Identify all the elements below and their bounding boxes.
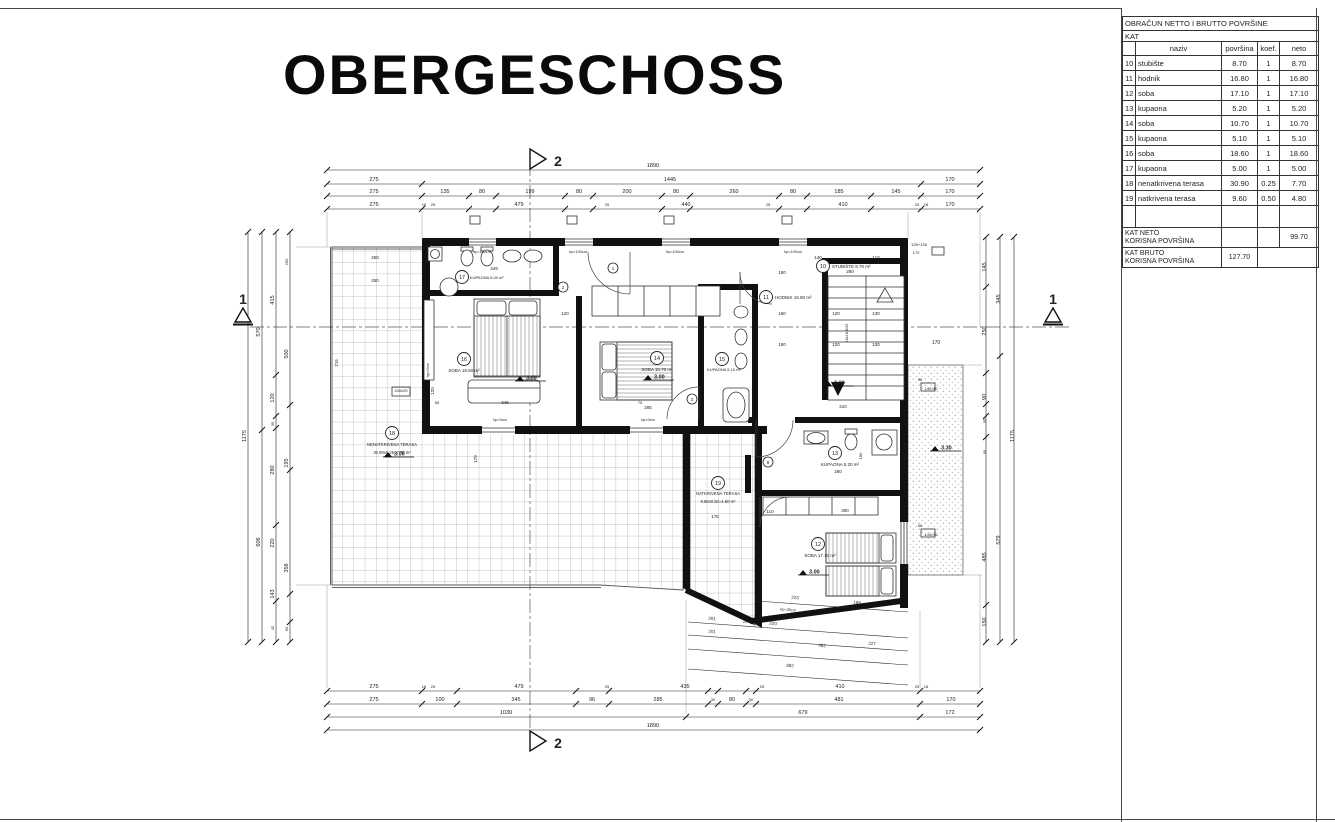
dim-label: 60 (284, 626, 289, 631)
dim-label: 180 (858, 452, 863, 459)
dim-label: 250 (371, 278, 379, 283)
section-marker-2-top (530, 149, 546, 169)
dim-label: 35 (982, 418, 987, 423)
dim-label: 280 (846, 269, 854, 274)
dim-label: 100 (435, 697, 444, 703)
dim-label: 1039 (500, 710, 512, 716)
dim-label: 130 (872, 342, 880, 347)
dim-label: 135 (440, 189, 449, 195)
dim-label: hp=0cm (493, 418, 507, 422)
room-number: 17 (459, 275, 465, 281)
sink-icon (734, 306, 748, 318)
elevation-value: 3.00 (654, 375, 665, 381)
dim-label: 25 (605, 202, 610, 207)
floor-plan-svg: 1890275144517027513580199802008026080185… (0, 0, 1335, 822)
dim-label: 285 (644, 405, 652, 410)
room-number: 19 (715, 481, 721, 487)
dim-label: 250 (371, 255, 379, 260)
dim-label: 80 (729, 697, 735, 703)
dim-label: 185 (834, 189, 843, 195)
sink-icon (503, 250, 521, 262)
dim-label: 280 (834, 469, 842, 474)
dim-label: 679 (798, 710, 807, 716)
room-name: KUPAONA 5.10 m² (707, 367, 741, 372)
room-name: STUBIŠTE 8.70 m² (832, 263, 871, 269)
dim-label: 345 (501, 400, 509, 405)
dim-label: 120 (430, 387, 435, 395)
dim-label: 189 (853, 600, 861, 606)
dim-label: 179 (473, 455, 478, 463)
dim-label: 150 (982, 617, 988, 626)
room-number: 11 (763, 295, 769, 301)
dim-label: 25 (605, 684, 610, 689)
elevation-value: 3.00 (809, 570, 820, 576)
room-name: KUPAONA 5.00 m² (470, 275, 504, 280)
dim-label: 300 (841, 508, 849, 513)
elevation-value: 3.00 (526, 376, 537, 382)
dim-label: 25 (760, 684, 765, 689)
dim-label: 570 (256, 327, 262, 336)
dim-label: 227 (868, 641, 876, 647)
room-name: SOBA 10.70 m² (641, 367, 673, 372)
bathtub-icon (723, 388, 749, 422)
dim-label: 275 (369, 202, 378, 208)
dim-label: hp=100cm (666, 250, 684, 254)
dim-label: 160 (778, 342, 786, 347)
dim-label: 500 (284, 349, 290, 358)
section-marker-1-left (233, 308, 253, 325)
sink-icon (524, 250, 542, 262)
dim-label: 358 (284, 563, 290, 572)
dim-label: 25 (915, 202, 920, 207)
dim-label: hp=100cm (903, 443, 907, 461)
dim-label: 410 (835, 684, 844, 690)
dim-label: 35 (270, 421, 275, 426)
dim-label: 170 (932, 340, 941, 346)
dim-label: 199 (525, 189, 534, 195)
dim-label: 30 (711, 697, 716, 702)
room-name: NENATKRIVENA TERASA (367, 442, 417, 447)
sink-icon (804, 431, 828, 444)
dim-label: 120 (270, 393, 276, 402)
shower-icon (440, 278, 458, 296)
dim-label: 479 (514, 202, 523, 208)
room-area: 30.90x0.25=7.70 m² (373, 450, 411, 455)
dim-label: 170 (945, 202, 954, 208)
dim-label: 201 (708, 616, 716, 622)
window-right (900, 522, 909, 564)
dim-label: 80 (790, 189, 796, 195)
dim-label: 2 (554, 153, 562, 169)
dim-label: 485 (982, 552, 988, 561)
wardrobe-room12 (763, 497, 878, 515)
room-area: 9.60x0.50=4.80 m² (700, 499, 736, 504)
dim-label: 200 (622, 189, 631, 195)
dim-label: 90 (982, 394, 988, 400)
dim-label: 482 (818, 643, 826, 649)
terrace-stippled (908, 365, 963, 575)
dim-label: 120 (561, 311, 569, 316)
dim-label: 170 (945, 177, 954, 183)
room-name: HODNIK 16.80 m² (775, 295, 812, 300)
elevation-value: 3.00 (394, 452, 405, 458)
dim-label: 135+135 (911, 242, 927, 247)
dim-label: 415 (270, 295, 276, 304)
dim-label: 140 (814, 255, 822, 260)
room-number: 13 (832, 451, 838, 457)
dim-label: 96 (589, 697, 595, 703)
dim-label: 160 (778, 270, 786, 275)
dim-label: 110 (872, 255, 880, 260)
section-marker-1-right (1043, 308, 1063, 325)
dim-label: 435 (680, 684, 689, 690)
dim-label: 275 (369, 177, 378, 183)
dim-label: 440 (681, 202, 690, 208)
dim-label: 1 (1049, 291, 1057, 307)
dim-label: 98 (918, 378, 922, 382)
dim-label: 25 (766, 202, 771, 207)
dim-label: 16x18.8/25 (845, 324, 849, 343)
dim-label: hp=0cm (879, 418, 893, 422)
window-top-3 (662, 238, 690, 247)
dim-label: hp=0cm (641, 418, 655, 422)
dim-label: 260 (729, 189, 738, 195)
dim-label: 175 (711, 514, 719, 519)
bed-room16 (474, 299, 540, 377)
dim-label: 1890 (647, 723, 659, 729)
dim-label: 1175 (242, 430, 248, 442)
dim-label: 42 (270, 625, 275, 630)
dim-label: 143 (270, 589, 276, 598)
dim-label: 349 (490, 266, 498, 271)
room-name: SOBA 18.60 m² (448, 368, 480, 373)
dim-label: 140+20 (925, 533, 938, 537)
dim-label: 201 (708, 629, 716, 635)
dim-label: 481 (834, 697, 843, 703)
dim-label: 410 (838, 202, 847, 208)
dim-label: hp=100cm (473, 250, 491, 254)
dim-label: 220 (769, 621, 777, 627)
dim-label: 172 (945, 710, 954, 716)
toilet-icon (735, 329, 747, 345)
dim-label: 70 (638, 400, 643, 405)
room-number: 16 (461, 357, 467, 363)
dim-label: 1445 (664, 177, 676, 183)
dim-label: 25 (915, 684, 920, 689)
dim-label: 275 (369, 684, 378, 690)
dim-label: 275 (369, 189, 378, 195)
dim-label: 18 (422, 684, 427, 689)
dim-label: 195 (284, 458, 290, 467)
dim-label: 345 (511, 697, 520, 703)
dim-label: hp=100cm (784, 250, 802, 254)
dim-label: 579 (996, 535, 1002, 544)
dim-label: 18 (924, 684, 929, 689)
dim-label: 170 (946, 697, 955, 703)
toilet-icon (845, 429, 857, 450)
dim-label: hp=100cm (569, 250, 587, 254)
dim-label: 310 (839, 404, 847, 409)
toilet-icon (461, 247, 473, 266)
elevation-value: 3.00 (834, 381, 845, 387)
room-name: KUPAONA 5.20 m² (821, 462, 859, 467)
dim-label: 110 (753, 465, 758, 472)
dim-label: hp=30cm (780, 607, 796, 612)
terrace-door-1 (482, 426, 515, 435)
elevation-symbol (799, 570, 807, 575)
terrace-door-2 (630, 426, 663, 435)
dim-label: 145 (891, 189, 900, 195)
dim-label: 68 (918, 524, 922, 528)
dim-label: 479 (514, 684, 523, 690)
room-number: 15 (719, 357, 725, 363)
dim-label: 240x20 (394, 388, 408, 393)
dim-label: 285 (653, 697, 662, 703)
room-name: NATKRIVENA TERASA (696, 491, 740, 496)
dim-label: 18 (924, 202, 929, 207)
dim-label: 2 (554, 735, 562, 751)
elevation-value: 3.30 (941, 446, 952, 452)
dim-label: 1175 (1010, 430, 1016, 442)
dim-label: 882 (786, 663, 794, 669)
room-name: SOBA 17.10 m² (804, 553, 836, 558)
beds-room12 (826, 533, 896, 596)
dim-label: 80 (576, 189, 582, 195)
washer-icon (428, 247, 442, 261)
dim-label: 220 (270, 538, 276, 547)
dim-label: 170 (913, 250, 920, 255)
dim-label: 60 (982, 449, 987, 454)
room-number: 10 (820, 264, 826, 270)
dim-label: 80 (479, 189, 485, 195)
dim-label: 25 (431, 202, 436, 207)
dim-label: 18 (422, 202, 427, 207)
wardrobe-room14 (592, 286, 720, 316)
dim-label: 160 (778, 311, 786, 316)
dim-label: 715 (334, 359, 339, 367)
dim-label: 170 (945, 189, 954, 195)
dim-label: 130 (872, 311, 880, 316)
window-top-2 (565, 238, 593, 247)
window-top-4 (779, 238, 807, 247)
dim-label: 110 (766, 509, 774, 514)
dim-label: 1 (239, 291, 247, 307)
dim-label: 25 (431, 684, 436, 689)
dim-label: 80 (673, 189, 679, 195)
section-marker-2-bottom (530, 731, 546, 751)
shower-icon (872, 430, 897, 455)
dim-label: 1890 (647, 163, 659, 169)
dim-label: 606 (256, 537, 262, 546)
dim-label: 65 (435, 400, 440, 405)
room-number: 14 (654, 356, 660, 362)
dim-label: 30 (749, 697, 754, 702)
dim-label: 140+20 (925, 387, 938, 391)
dim-label: 120 (832, 311, 840, 316)
dim-label: 223 (791, 595, 799, 601)
room-number: 12 (815, 542, 821, 548)
dim-label: 145 (982, 262, 988, 271)
dim-label: 280 (270, 465, 276, 474)
window-top-1 (469, 238, 496, 247)
dim-label: 250 (284, 258, 289, 265)
dim-label: hp=0cm (426, 363, 430, 377)
dim-label: 120 (832, 342, 840, 347)
dim-label: 345 (996, 294, 1002, 303)
dim-label: 250 (982, 326, 988, 335)
room-number: 18 (389, 431, 395, 437)
drawing-sheet: OBERGESCHOSS OBRAČUN NETTO I BRUTTO POVR… (0, 0, 1335, 822)
dim-label: 275 (369, 697, 378, 703)
